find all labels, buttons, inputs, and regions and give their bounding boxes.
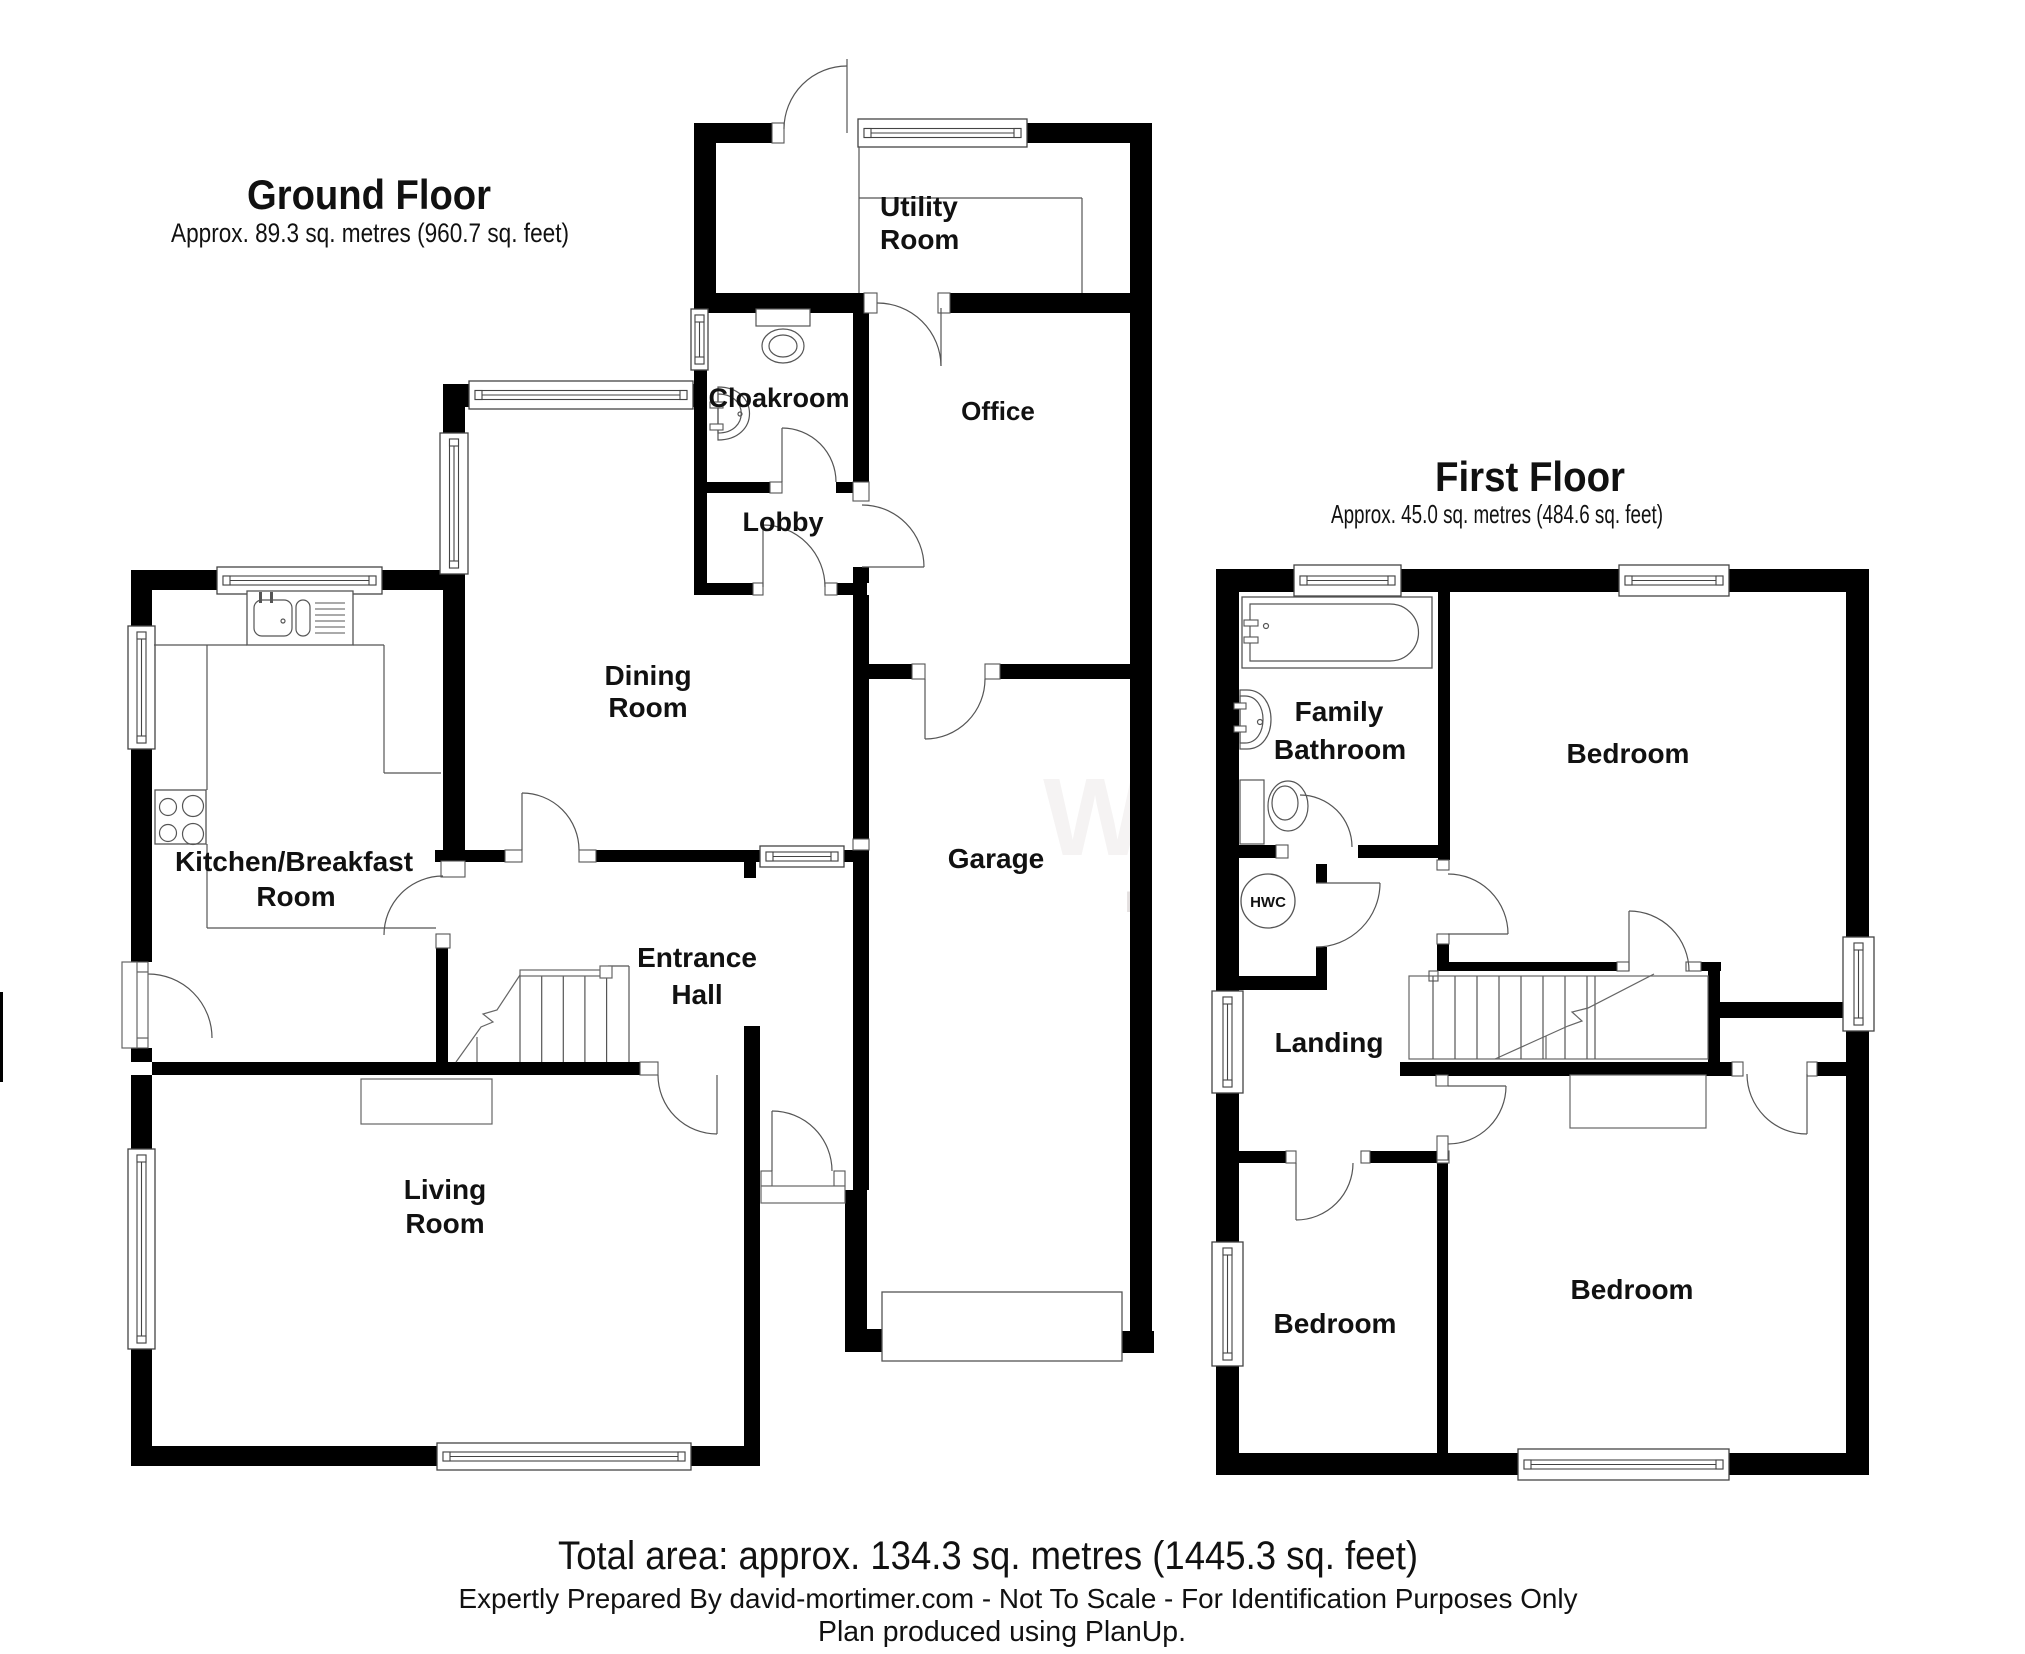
svg-text:Bedroom: Bedroom [1567, 738, 1690, 769]
svg-text:Room: Room [256, 881, 335, 912]
svg-text:Office: Office [961, 396, 1035, 426]
svg-text:Family: Family [1295, 696, 1384, 727]
svg-text:HWC: HWC [1250, 894, 1286, 911]
svg-text:Garage: Garage [948, 843, 1045, 874]
svg-text:Bedroom: Bedroom [1274, 1308, 1397, 1339]
svg-text:Lobby: Lobby [743, 507, 824, 537]
svg-text:First Floor: First Floor [1435, 453, 1625, 500]
svg-text:Hall: Hall [671, 979, 722, 1010]
svg-text:Approx. 45.0 sq. metres (484.6: Approx. 45.0 sq. metres (484.6 sq. feet) [1331, 499, 1663, 529]
svg-text:Bathroom: Bathroom [1274, 734, 1406, 765]
svg-text:Utility: Utility [880, 191, 958, 222]
svg-text:Entrance: Entrance [637, 942, 757, 973]
svg-text:Bedroom: Bedroom [1571, 1274, 1694, 1305]
svg-text:Total area: approx. 134.3 sq.: Total area: approx. 134.3 sq. metres (14… [558, 1534, 1418, 1578]
svg-text:Kitchen/Breakfast: Kitchen/Breakfast [175, 846, 413, 877]
svg-text:Plan produced using PlanUp.: Plan produced using PlanUp. [818, 1616, 1186, 1648]
svg-text:Living: Living [404, 1174, 486, 1205]
svg-text:Room: Room [608, 692, 687, 723]
svg-text:Room: Room [405, 1208, 484, 1239]
svg-text:Approx. 89.3 sq. metres (960.7: Approx. 89.3 sq. metres (960.7 sq. feet) [171, 218, 569, 248]
svg-text:Room: Room [880, 224, 959, 255]
svg-text:Expertly Prepared By david-mor: Expertly Prepared By david-mortimer.com … [459, 1583, 1578, 1614]
svg-text:Cloakroom: Cloakroom [708, 383, 849, 413]
svg-text:Landing: Landing [1275, 1027, 1384, 1058]
svg-text:Dining: Dining [604, 660, 691, 691]
svg-text:Ground Floor: Ground Floor [247, 171, 491, 218]
